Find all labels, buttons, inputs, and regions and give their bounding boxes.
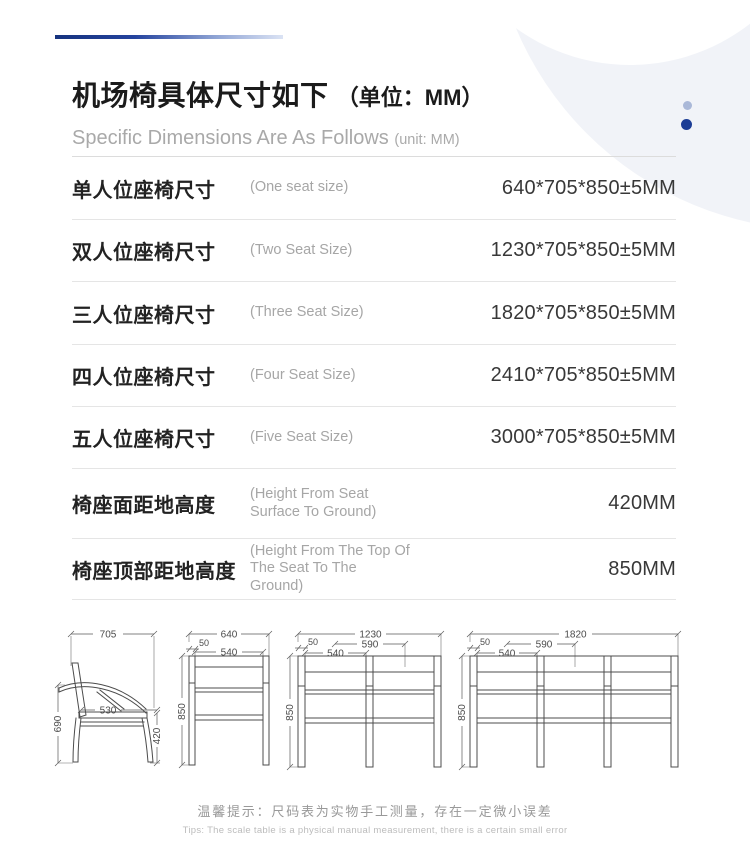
one-seat-front-diagram: 640 50 540 850 — [175, 622, 285, 782]
table-row: 椅座顶部距地高度 (Height From The Top Of The Sea… — [72, 539, 676, 600]
row-label-cn: 椅座顶部距地高度 — [72, 555, 250, 584]
row-label-en: (Four Seat Size) — [250, 367, 356, 384]
two-seat-height-dim: 850 — [285, 704, 296, 721]
row-label-en: (Two Seat Size) — [250, 242, 352, 259]
two-seat-pitch-dim: 590 — [362, 640, 379, 651]
page-subtitle-en: Specific Dimensions Are As Follows — [72, 127, 389, 149]
two-seat-leg-offset-dim: 50 — [308, 637, 318, 647]
page-subtitle: Specific Dimensions Are As Follows (unit… — [72, 126, 460, 152]
one-seat-height-dim: 850 — [177, 703, 188, 720]
decor-dot-light — [683, 101, 692, 110]
row-value: 850MM — [608, 558, 676, 581]
row-value: 420MM — [608, 492, 676, 515]
page-subtitle-unit: (unit: MM) — [394, 132, 459, 148]
three-seat-pitch-dim: 590 — [536, 640, 553, 651]
side-view-diagram: 705 690 530 420 — [45, 622, 175, 782]
three-seat-inner-width-dim: 540 — [499, 649, 516, 660]
spec-sheet-page: 机场椅具体尺寸如下 （单位：MM） Specific Dimensions Ar… — [0, 0, 750, 852]
footer-tip-en: Tips: The scale table is a physical manu… — [0, 825, 750, 836]
table-row: 椅座面距地高度 (Height From Seat Surface To Gro… — [72, 469, 676, 539]
row-label-en: (One seat size) — [250, 179, 348, 196]
table-row: 四人位座椅尺寸 (Four Seat Size) 2410*705*850±5M… — [72, 345, 676, 407]
table-row: 三人位座椅尺寸 (Three Seat Size) 1820*705*850±5… — [72, 282, 676, 345]
row-value: 1230*705*850±5MM — [491, 239, 676, 262]
accent-gradient-line — [55, 35, 283, 39]
row-label-cn: 双人位座椅尺寸 — [72, 236, 250, 265]
page-title-unit: （单位：MM） — [337, 85, 484, 110]
row-label-en: (Height From The Top Of The Seat To The … — [250, 543, 412, 595]
row-label-en: (Three Seat Size) — [250, 304, 364, 321]
row-label-en: (Height From Seat Surface To Ground) — [250, 486, 412, 521]
side-seat-height-dim: 420 — [152, 727, 163, 744]
side-seat-depth-dim: 530 — [100, 706, 117, 717]
two-seat-front-diagram: 1230 590 50 540 850 — [283, 622, 468, 782]
three-seat-width-dim: 1820 — [564, 630, 587, 641]
one-seat-leg-offset-dim: 50 — [199, 638, 209, 648]
row-label-cn: 五人位座椅尺寸 — [72, 423, 250, 452]
three-seat-leg-offset-dim: 50 — [480, 637, 490, 647]
row-label-en: (Five Seat Size) — [250, 429, 353, 446]
footer-tip-cn: 温馨提示：尺码表为实物手工测量，存在一定微小误差 — [0, 801, 750, 820]
row-value: 640*705*850±5MM — [502, 177, 676, 200]
table-row: 双人位座椅尺寸 (Two Seat Size) 1230*705*850±5MM — [72, 220, 676, 282]
row-label-cn: 三人位座椅尺寸 — [72, 299, 250, 328]
table-row: 五人位座椅尺寸 (Five Seat Size) 3000*705*850±5M… — [72, 407, 676, 469]
row-value: 1820*705*850±5MM — [491, 302, 676, 325]
footer-tip: 温馨提示：尺码表为实物手工测量，存在一定微小误差 Tips: The scale… — [0, 801, 750, 836]
table-row: 单人位座椅尺寸 (One seat size) 640*705*850±5MM — [72, 157, 676, 220]
three-seat-front-diagram: 1820 590 50 540 850 — [455, 622, 700, 782]
side-back-height-dim: 690 — [53, 715, 64, 732]
three-seat-height-dim: 850 — [457, 704, 468, 721]
row-label-cn: 四人位座椅尺寸 — [72, 361, 250, 390]
two-seat-inner-width-dim: 540 — [327, 649, 344, 660]
dimension-table: 单人位座椅尺寸 (One seat size) 640*705*850±5MM … — [72, 157, 676, 600]
decor-dot-dark — [681, 119, 692, 130]
row-value: 2410*705*850±5MM — [491, 364, 676, 387]
row-label-cn: 单人位座椅尺寸 — [72, 174, 250, 203]
page-title-cn: 机场椅具体尺寸如下 — [72, 80, 329, 111]
one-seat-width-dim: 640 — [221, 630, 238, 641]
page-title: 机场椅具体尺寸如下 （单位：MM） — [72, 78, 483, 116]
row-label-cn: 椅座面距地高度 — [72, 489, 250, 518]
side-width-dim: 705 — [100, 630, 117, 641]
row-value: 3000*705*850±5MM — [491, 426, 676, 449]
one-seat-inner-width-dim: 540 — [221, 648, 238, 659]
